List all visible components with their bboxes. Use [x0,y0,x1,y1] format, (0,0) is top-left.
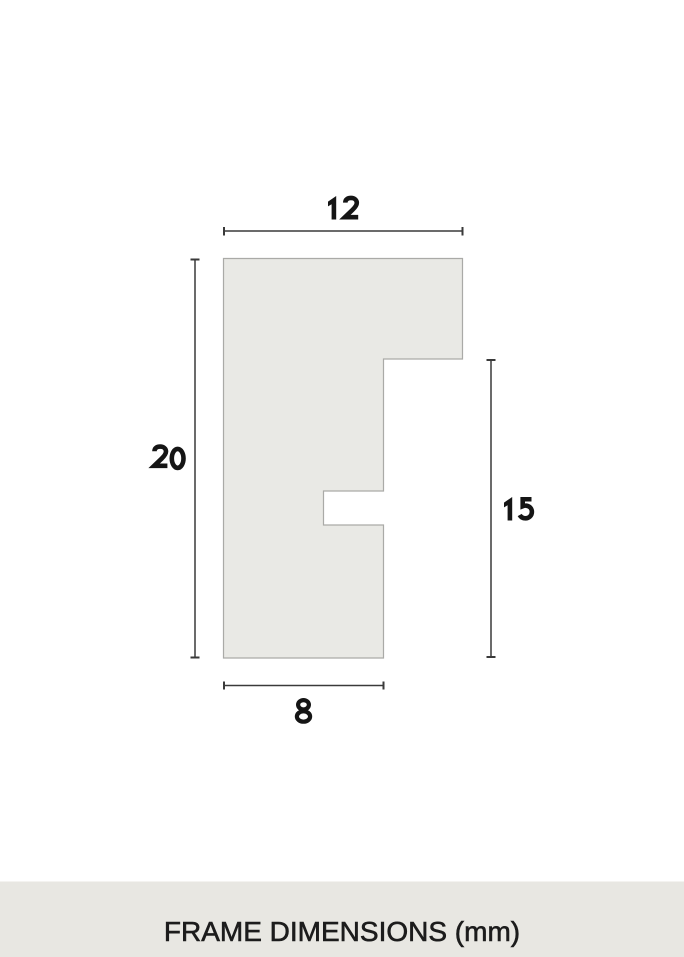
svg-text:FRAME DIMENSIONS (mm): FRAME DIMENSIONS (mm) [164,916,520,947]
